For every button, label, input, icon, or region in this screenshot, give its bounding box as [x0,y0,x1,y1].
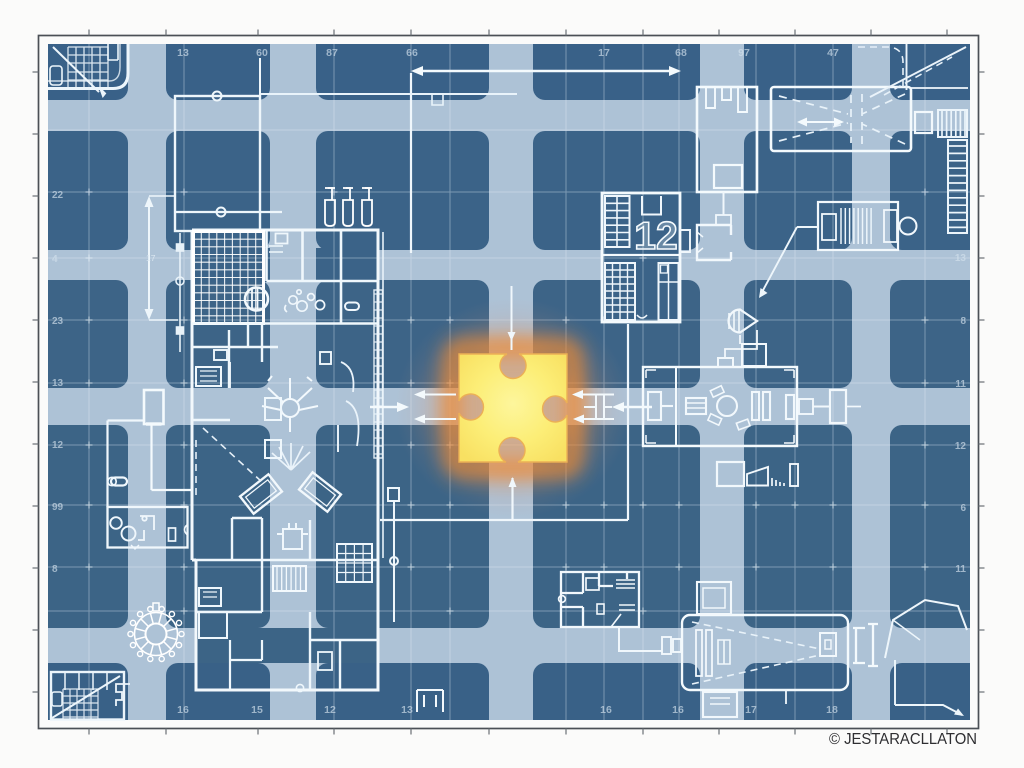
svg-text:15: 15 [251,704,263,716]
svg-text:13: 13 [52,378,64,389]
svg-text:© JESTARACLLATON: © JESTARACLLATON [829,731,977,748]
svg-text:8: 8 [960,316,966,327]
svg-text:13: 13 [955,253,967,264]
svg-text:17: 17 [598,47,610,59]
svg-text:16: 16 [177,704,189,716]
svg-text:97: 97 [738,47,750,59]
svg-text:13: 13 [177,47,189,59]
svg-text:17: 17 [745,704,757,716]
svg-text:6: 6 [960,503,966,514]
svg-text:12: 12 [324,704,336,716]
svg-text:66: 66 [406,47,418,59]
svg-text:11: 11 [955,564,966,575]
svg-text:68: 68 [675,47,687,59]
svg-text:99: 99 [52,502,64,513]
svg-text:12: 12 [634,215,677,258]
svg-text:17: 17 [146,253,156,263]
svg-text:60: 60 [256,47,268,59]
svg-text:87: 87 [326,47,338,59]
svg-text:11: 11 [955,379,966,390]
svg-text:8: 8 [52,564,58,575]
svg-text:16: 16 [600,704,612,716]
svg-text:13: 13 [401,704,413,716]
svg-text:4: 4 [52,254,58,265]
svg-text:16: 16 [672,704,684,716]
svg-text:12: 12 [955,441,967,452]
svg-text:22: 22 [52,190,64,201]
svg-text:18: 18 [826,704,838,716]
svg-text:23: 23 [52,316,64,327]
svg-text:12: 12 [52,440,64,451]
svg-text:47: 47 [827,47,839,59]
